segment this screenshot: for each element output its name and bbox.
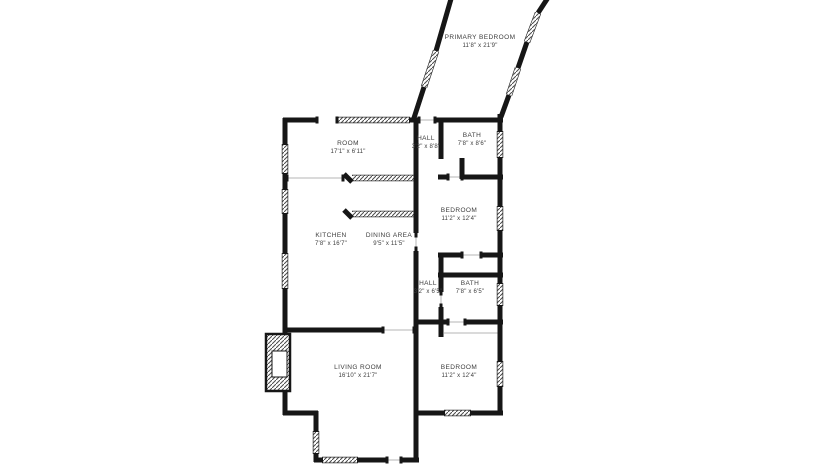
door-tick xyxy=(342,175,345,182)
door-tick xyxy=(336,117,339,124)
door-tick xyxy=(413,327,416,334)
door-tick xyxy=(415,247,418,254)
door-tick xyxy=(418,117,421,124)
door-tick xyxy=(461,252,464,259)
door-tick xyxy=(461,174,464,181)
door-tick xyxy=(286,175,289,182)
door-tick xyxy=(447,319,450,326)
door-tick xyxy=(386,457,389,464)
door-tick xyxy=(447,174,450,181)
door-tick xyxy=(382,327,385,334)
door-tick xyxy=(480,252,483,259)
door-tick xyxy=(464,319,467,326)
door-tick xyxy=(316,117,319,124)
door-tick xyxy=(434,117,437,124)
door-tick xyxy=(415,231,418,238)
floorplan-svg xyxy=(0,0,835,467)
fireplace xyxy=(266,334,290,391)
door-tick xyxy=(440,304,443,311)
floorplan-canvas: PRIMARY BEDROOM11'8" x 21'9"ROOM17'1" x … xyxy=(0,0,835,467)
door-tick xyxy=(440,289,443,296)
door-tick xyxy=(400,457,403,464)
